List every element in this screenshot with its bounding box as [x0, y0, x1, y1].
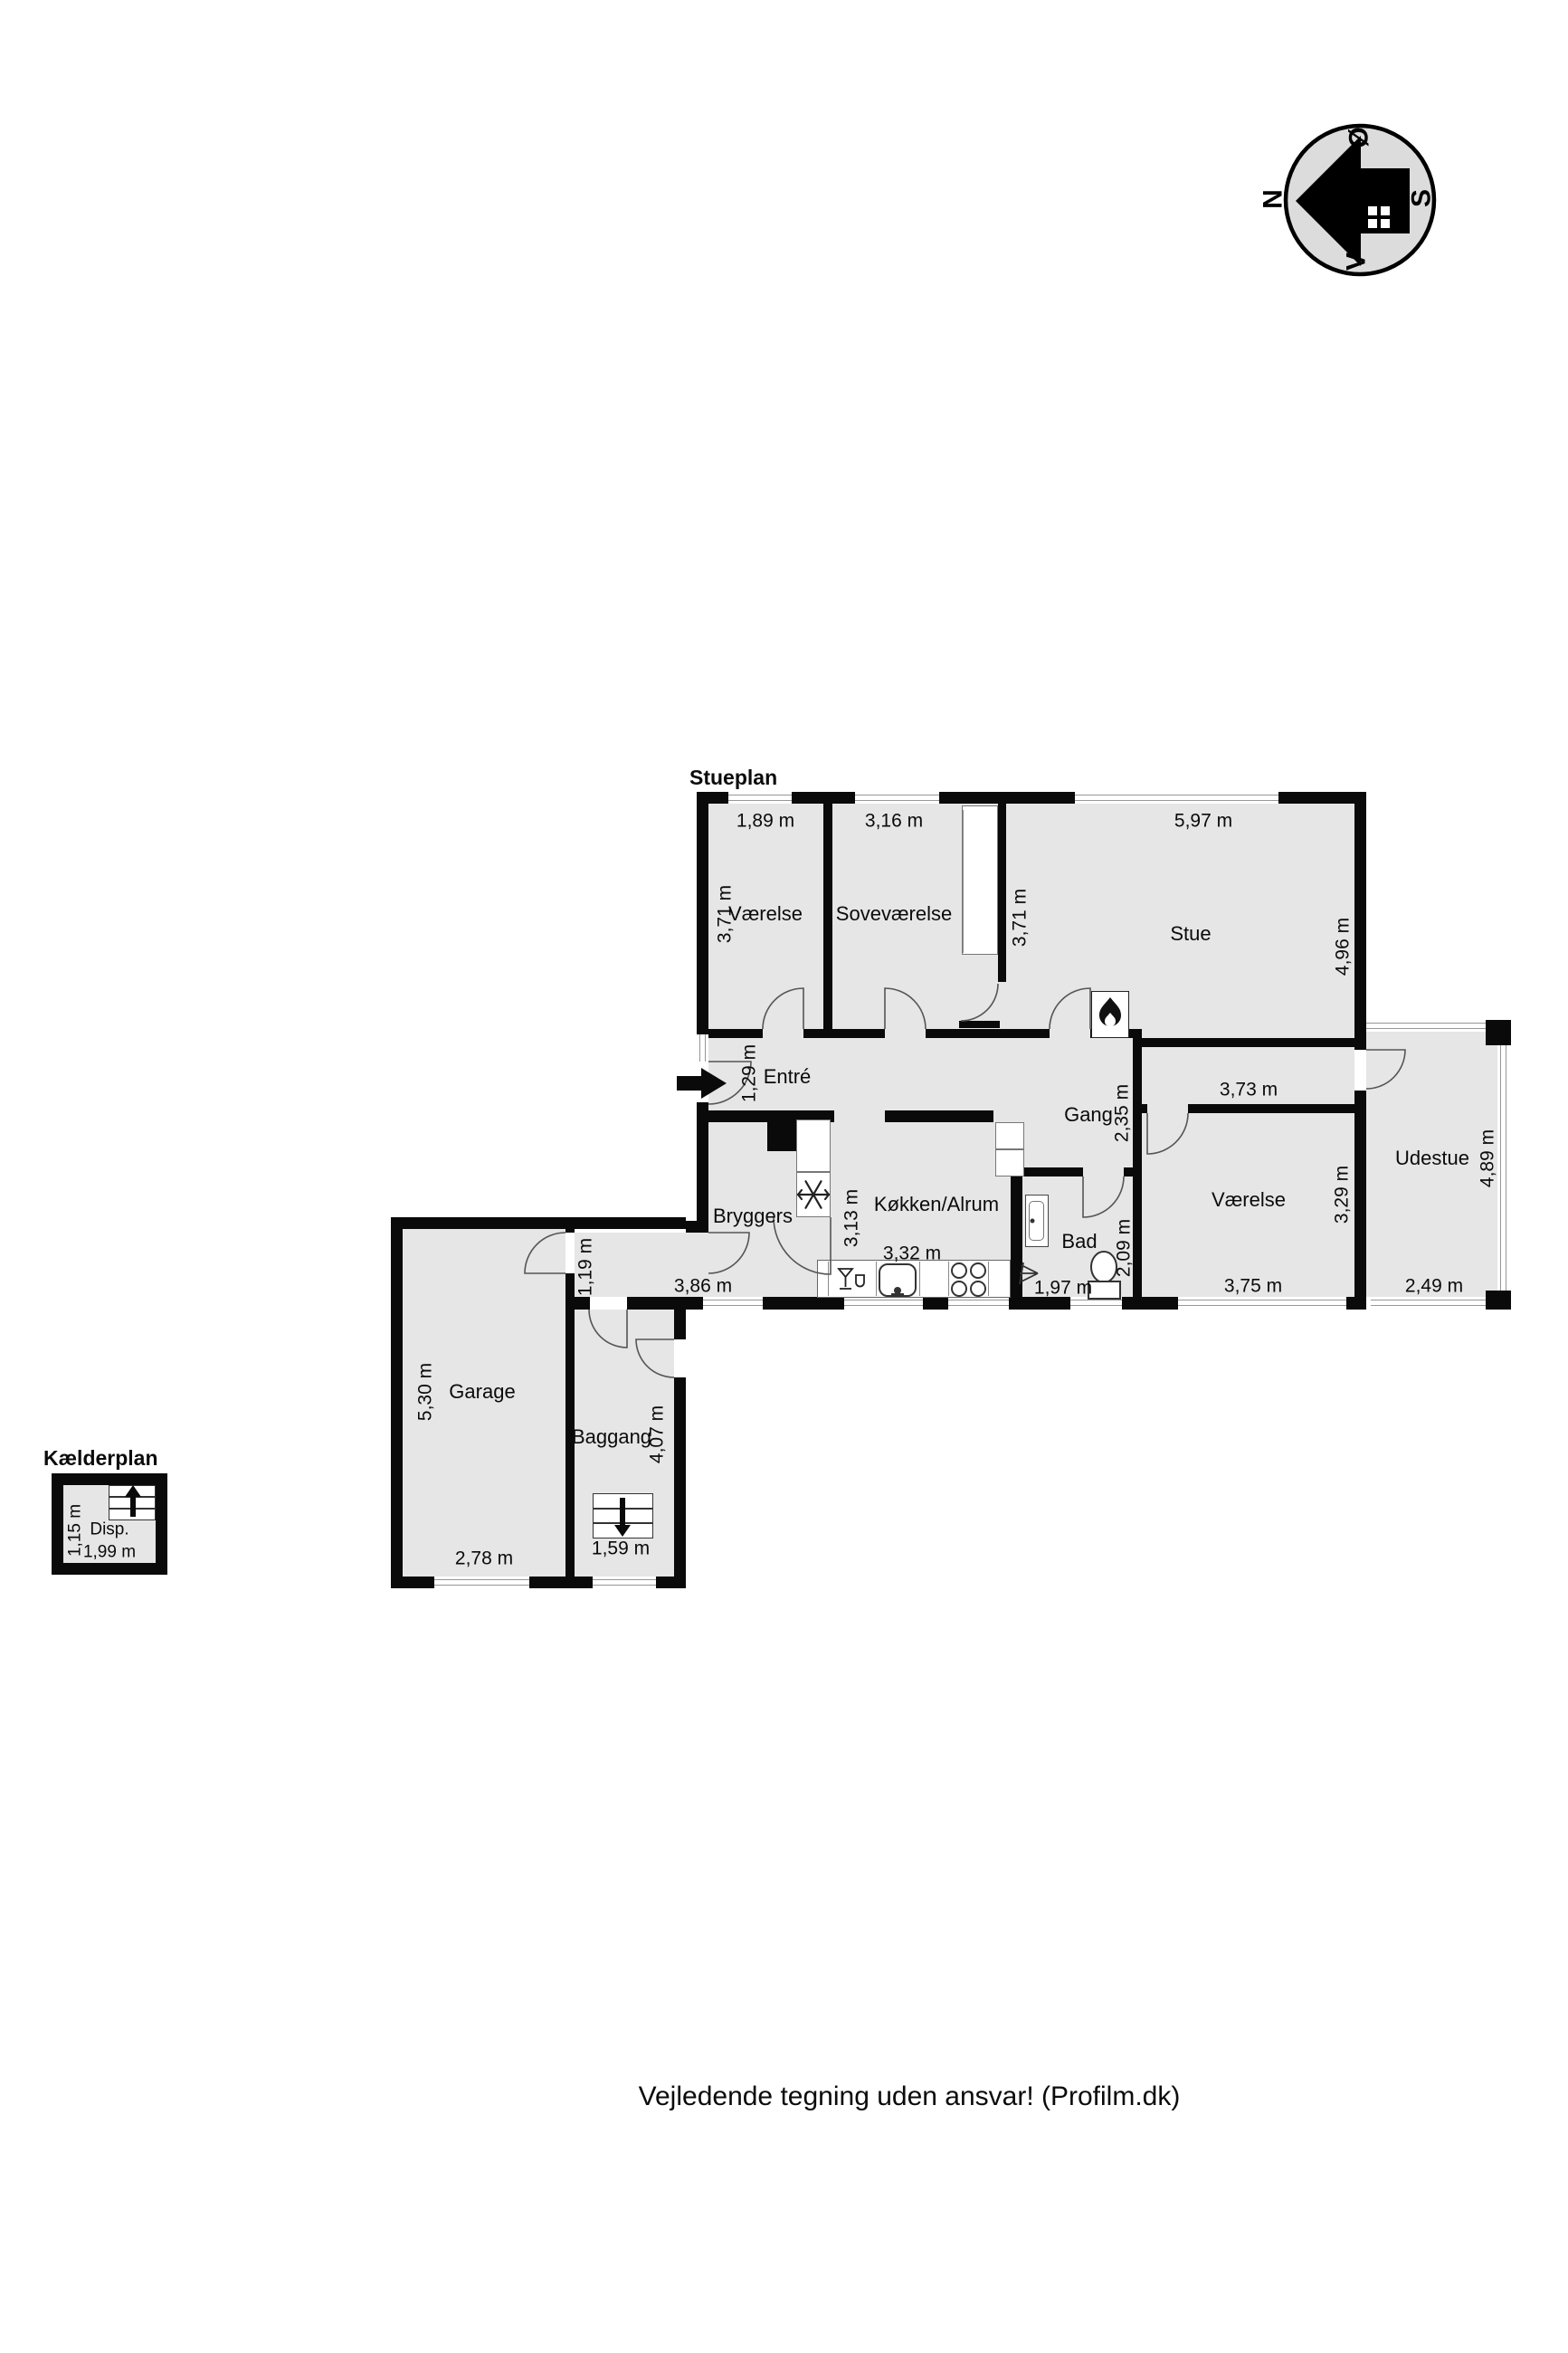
- plan-graphic: [971, 1281, 985, 1296]
- dim-label: 3,71 m: [714, 885, 735, 943]
- compass-east-label: Ø: [1345, 127, 1374, 148]
- room-label-disp: Disp.: [90, 1521, 128, 1540]
- entry-arrow-icon: [677, 1068, 727, 1099]
- room-label-stue: Stue: [1170, 923, 1211, 945]
- dim-label: 1,59 m: [592, 1538, 650, 1558]
- stove-icon: [952, 1263, 985, 1296]
- door-arc: [763, 988, 803, 1029]
- dim-label: 3,29 m: [1331, 1166, 1352, 1224]
- plan-graphic: [1368, 219, 1377, 228]
- sink-icon: [879, 1264, 916, 1296]
- plan-graphic: [1381, 206, 1390, 215]
- door-arc: [1147, 1113, 1188, 1154]
- plan-graphic: [525, 984, 1405, 1377]
- plan-graphic: [614, 1498, 631, 1537]
- door-arc: [636, 1339, 674, 1377]
- stairs-up-arrow-icon: [125, 1485, 141, 1517]
- plan-graphic: [677, 1068, 727, 1099]
- dim-label: 3,73 m: [1220, 1079, 1278, 1100]
- dim-label: 1,99 m: [83, 1544, 136, 1563]
- dim-label: 5,30 m: [414, 1363, 435, 1421]
- snowflake-icon: [798, 1181, 829, 1207]
- dim-label: 3,32 m: [883, 1243, 941, 1263]
- compass-north-label: N: [1259, 189, 1288, 209]
- dim-label: 1,29 m: [738, 1044, 759, 1102]
- plan-graphic: [952, 1263, 966, 1278]
- flame-icon: [1099, 997, 1121, 1027]
- dim-label: 4,89 m: [1477, 1129, 1497, 1187]
- dim-label: 3,16 m: [865, 810, 923, 831]
- compass-icon: N Ø S V: [1259, 126, 1437, 274]
- disclaimer-text: Vejledende tegning uden ansvar! (Profilm…: [638, 2081, 1181, 2112]
- plan-graphic: [894, 1287, 901, 1294]
- room-label-bad: Bad: [1061, 1231, 1097, 1253]
- plan-graphic: [125, 1485, 141, 1517]
- dim-label: 2,35 m: [1111, 1084, 1132, 1142]
- dim-label: 3,71 m: [1009, 889, 1030, 947]
- plan-graphic: [1368, 206, 1377, 215]
- room-label-udestue: Udestue: [1395, 1148, 1469, 1169]
- room-label-baggang: Baggang: [572, 1426, 651, 1448]
- room-label-gang: Gang: [1064, 1104, 1113, 1126]
- dishwasher-icon: [839, 1269, 864, 1289]
- plan-graphic: [1088, 1281, 1120, 1299]
- compass-south-label: S: [1407, 189, 1437, 207]
- plan-graphic: [1381, 219, 1390, 228]
- door-arc: [525, 1233, 565, 1273]
- door-arc: [1083, 1176, 1124, 1217]
- door-arc: [589, 1310, 627, 1348]
- dim-label: 2,49 m: [1405, 1275, 1463, 1296]
- dim-label: 3,86 m: [674, 1275, 732, 1296]
- dim-label: 1,19 m: [575, 1238, 595, 1296]
- room-label-sovevaerelse: Soveværelse: [836, 903, 952, 925]
- plan-graphic: [971, 1263, 985, 1278]
- dim-label: 5,97 m: [1174, 810, 1232, 831]
- dim-label: 4,07 m: [646, 1405, 667, 1463]
- room-label-garage: Garage: [449, 1381, 515, 1403]
- room-label-bryggers: Bryggers: [713, 1205, 793, 1227]
- compass-west-label: V: [1342, 252, 1372, 271]
- faucet-dot: [1031, 1219, 1035, 1224]
- stairs-down-arrow-icon: [614, 1498, 631, 1537]
- door-arc: [885, 988, 926, 1029]
- door-arc: [961, 984, 998, 1021]
- floorplan-canvas: Stueplan Kælderplan: [0, 0, 1568, 2353]
- room-label-vaerelse-tl: Værelse: [728, 903, 803, 925]
- room-label-vaerelse-br: Værelse: [1212, 1189, 1286, 1211]
- dim-label: 1,97 m: [1034, 1277, 1092, 1298]
- door-arc: [708, 1233, 749, 1273]
- door-arc: [1050, 988, 1090, 1029]
- room-label-entre: Entré: [764, 1066, 812, 1088]
- door-arc: [1366, 1050, 1405, 1089]
- dim-label: 3,75 m: [1224, 1275, 1282, 1296]
- dim-label: 2,78 m: [455, 1548, 513, 1568]
- plan-graphic: [952, 1281, 966, 1296]
- plan-graphic: [856, 1275, 864, 1287]
- dim-label: 1,89 m: [736, 810, 794, 831]
- room-label-koekken: Køkken/Alrum: [874, 1194, 999, 1215]
- dim-label: 2,09 m: [1113, 1219, 1134, 1277]
- plan-graphic: [839, 1269, 852, 1277]
- dim-label: 4,96 m: [1332, 918, 1353, 976]
- dim-label: 3,13 m: [841, 1189, 861, 1247]
